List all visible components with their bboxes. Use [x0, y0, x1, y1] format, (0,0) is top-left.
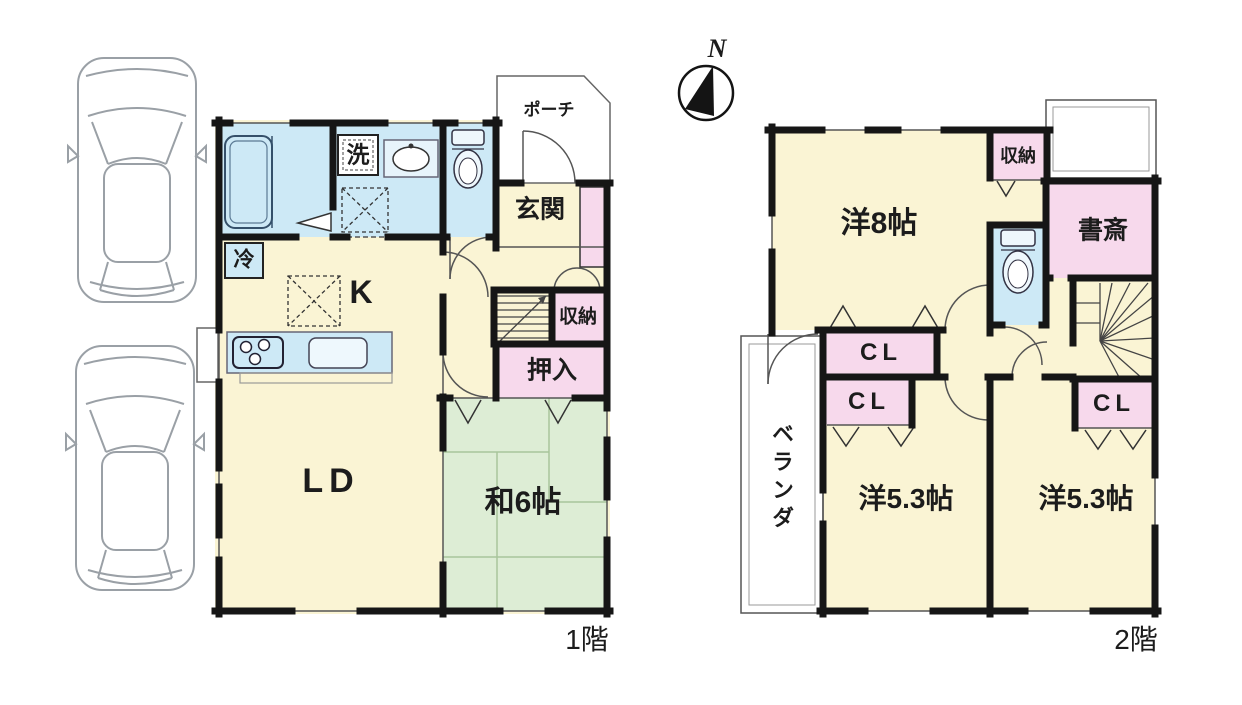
label-kitchen: K — [349, 276, 372, 308]
toilet-icon — [1001, 230, 1035, 293]
stove-icon — [233, 337, 283, 368]
label-veranda: ベランダ — [770, 422, 792, 534]
label-fridge: 冷 — [234, 250, 255, 271]
sink-icon — [384, 140, 438, 177]
toilet-icon — [452, 130, 484, 188]
floorplan-canvas: ポーチ 玄関 洗 冷 K LD 収納 押入 和6帖 1階 洋8帖 収納 書斎 C… — [0, 0, 1242, 705]
north-compass-icon — [679, 66, 733, 120]
floor2-room-fills — [741, 100, 1156, 613]
label-storage-2f: 収納 — [1000, 147, 1036, 165]
label-entrance: 玄関 — [515, 198, 565, 223]
label-closet-left: CL — [848, 390, 890, 414]
label-closet-right: CL — [1093, 392, 1135, 416]
label-western-53-right: 洋5.3帖 — [1039, 485, 1134, 513]
label-north: N — [708, 36, 727, 62]
label-floor1: 1階 — [565, 626, 609, 654]
label-laundry: 洗 — [347, 144, 370, 167]
label-closet-top: CL — [860, 341, 902, 365]
label-porch: ポーチ — [524, 102, 575, 119]
label-floor2: 2階 — [1114, 626, 1158, 654]
car-icon — [66, 346, 204, 590]
kitchen-sink-icon — [309, 338, 367, 368]
bathtub-icon — [225, 136, 272, 228]
label-study: 書斎 — [1078, 219, 1128, 244]
label-living-dining: LD — [302, 464, 359, 498]
label-western-8: 洋8帖 — [841, 209, 918, 239]
car-icon — [68, 58, 206, 302]
label-storage-1f: 収納 — [559, 308, 597, 327]
label-japanese-room: 和6帖 — [485, 488, 562, 518]
floorplan-drawing — [0, 0, 1242, 705]
label-western-53-left: 洋5.3帖 — [859, 485, 954, 513]
label-oshiire: 押入 — [527, 359, 577, 384]
